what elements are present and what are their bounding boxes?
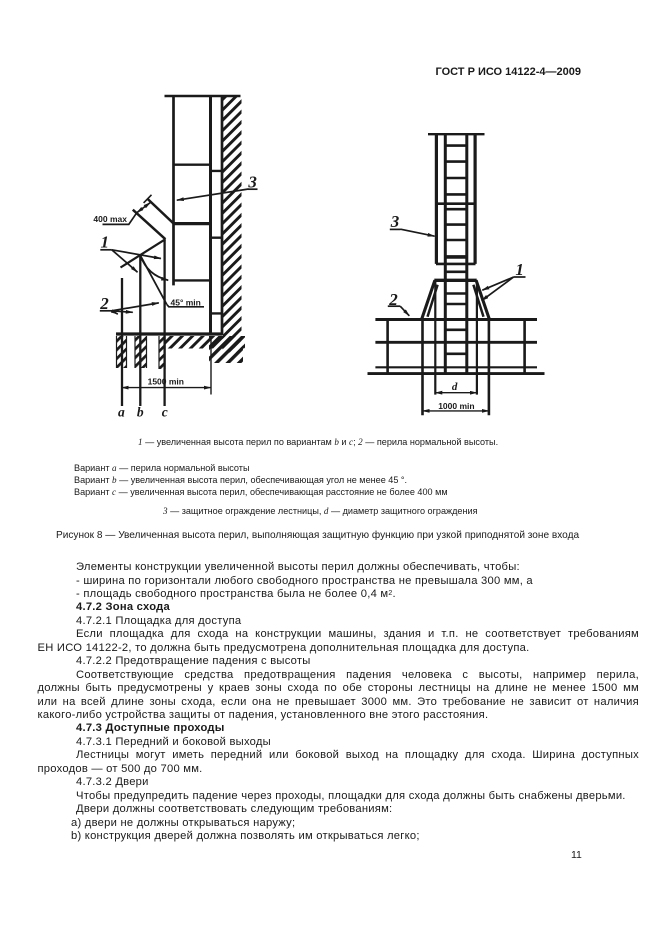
svg-text:b: b bbox=[137, 405, 144, 420]
svg-text:1000 min: 1000 min bbox=[438, 401, 474, 411]
svg-text:3: 3 bbox=[247, 173, 257, 192]
svg-text:1: 1 bbox=[515, 260, 524, 279]
svg-text:1: 1 bbox=[101, 233, 110, 252]
svg-text:d: d bbox=[452, 381, 458, 393]
svg-text:2: 2 bbox=[388, 290, 398, 309]
svg-text:45° min: 45° min bbox=[171, 298, 201, 308]
svg-text:a: a bbox=[118, 405, 125, 420]
svg-text:c: c bbox=[162, 405, 168, 420]
svg-text:3: 3 bbox=[390, 212, 400, 231]
svg-text:1500 min: 1500 min bbox=[148, 377, 184, 387]
svg-text:2: 2 bbox=[99, 294, 109, 313]
svg-text:400 max: 400 max bbox=[93, 214, 127, 224]
